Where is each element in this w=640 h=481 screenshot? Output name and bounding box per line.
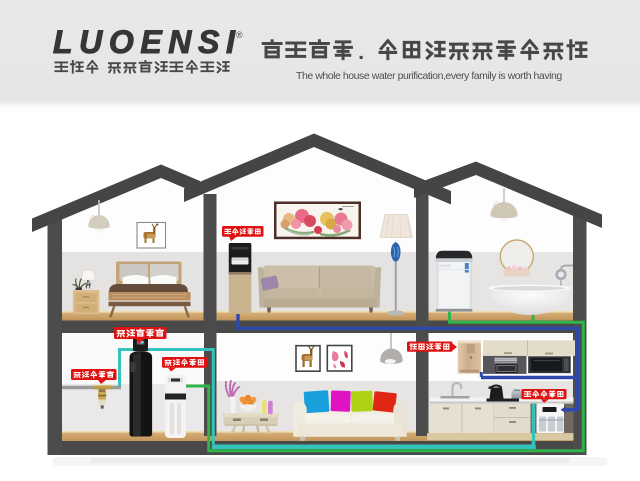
svg-text:LUOENSI: LUOENSI: [53, 24, 241, 60]
svg-text:The whole house water purifica: The whole house water purification,every…: [296, 70, 562, 82]
svg-text:®: ®: [236, 30, 243, 40]
